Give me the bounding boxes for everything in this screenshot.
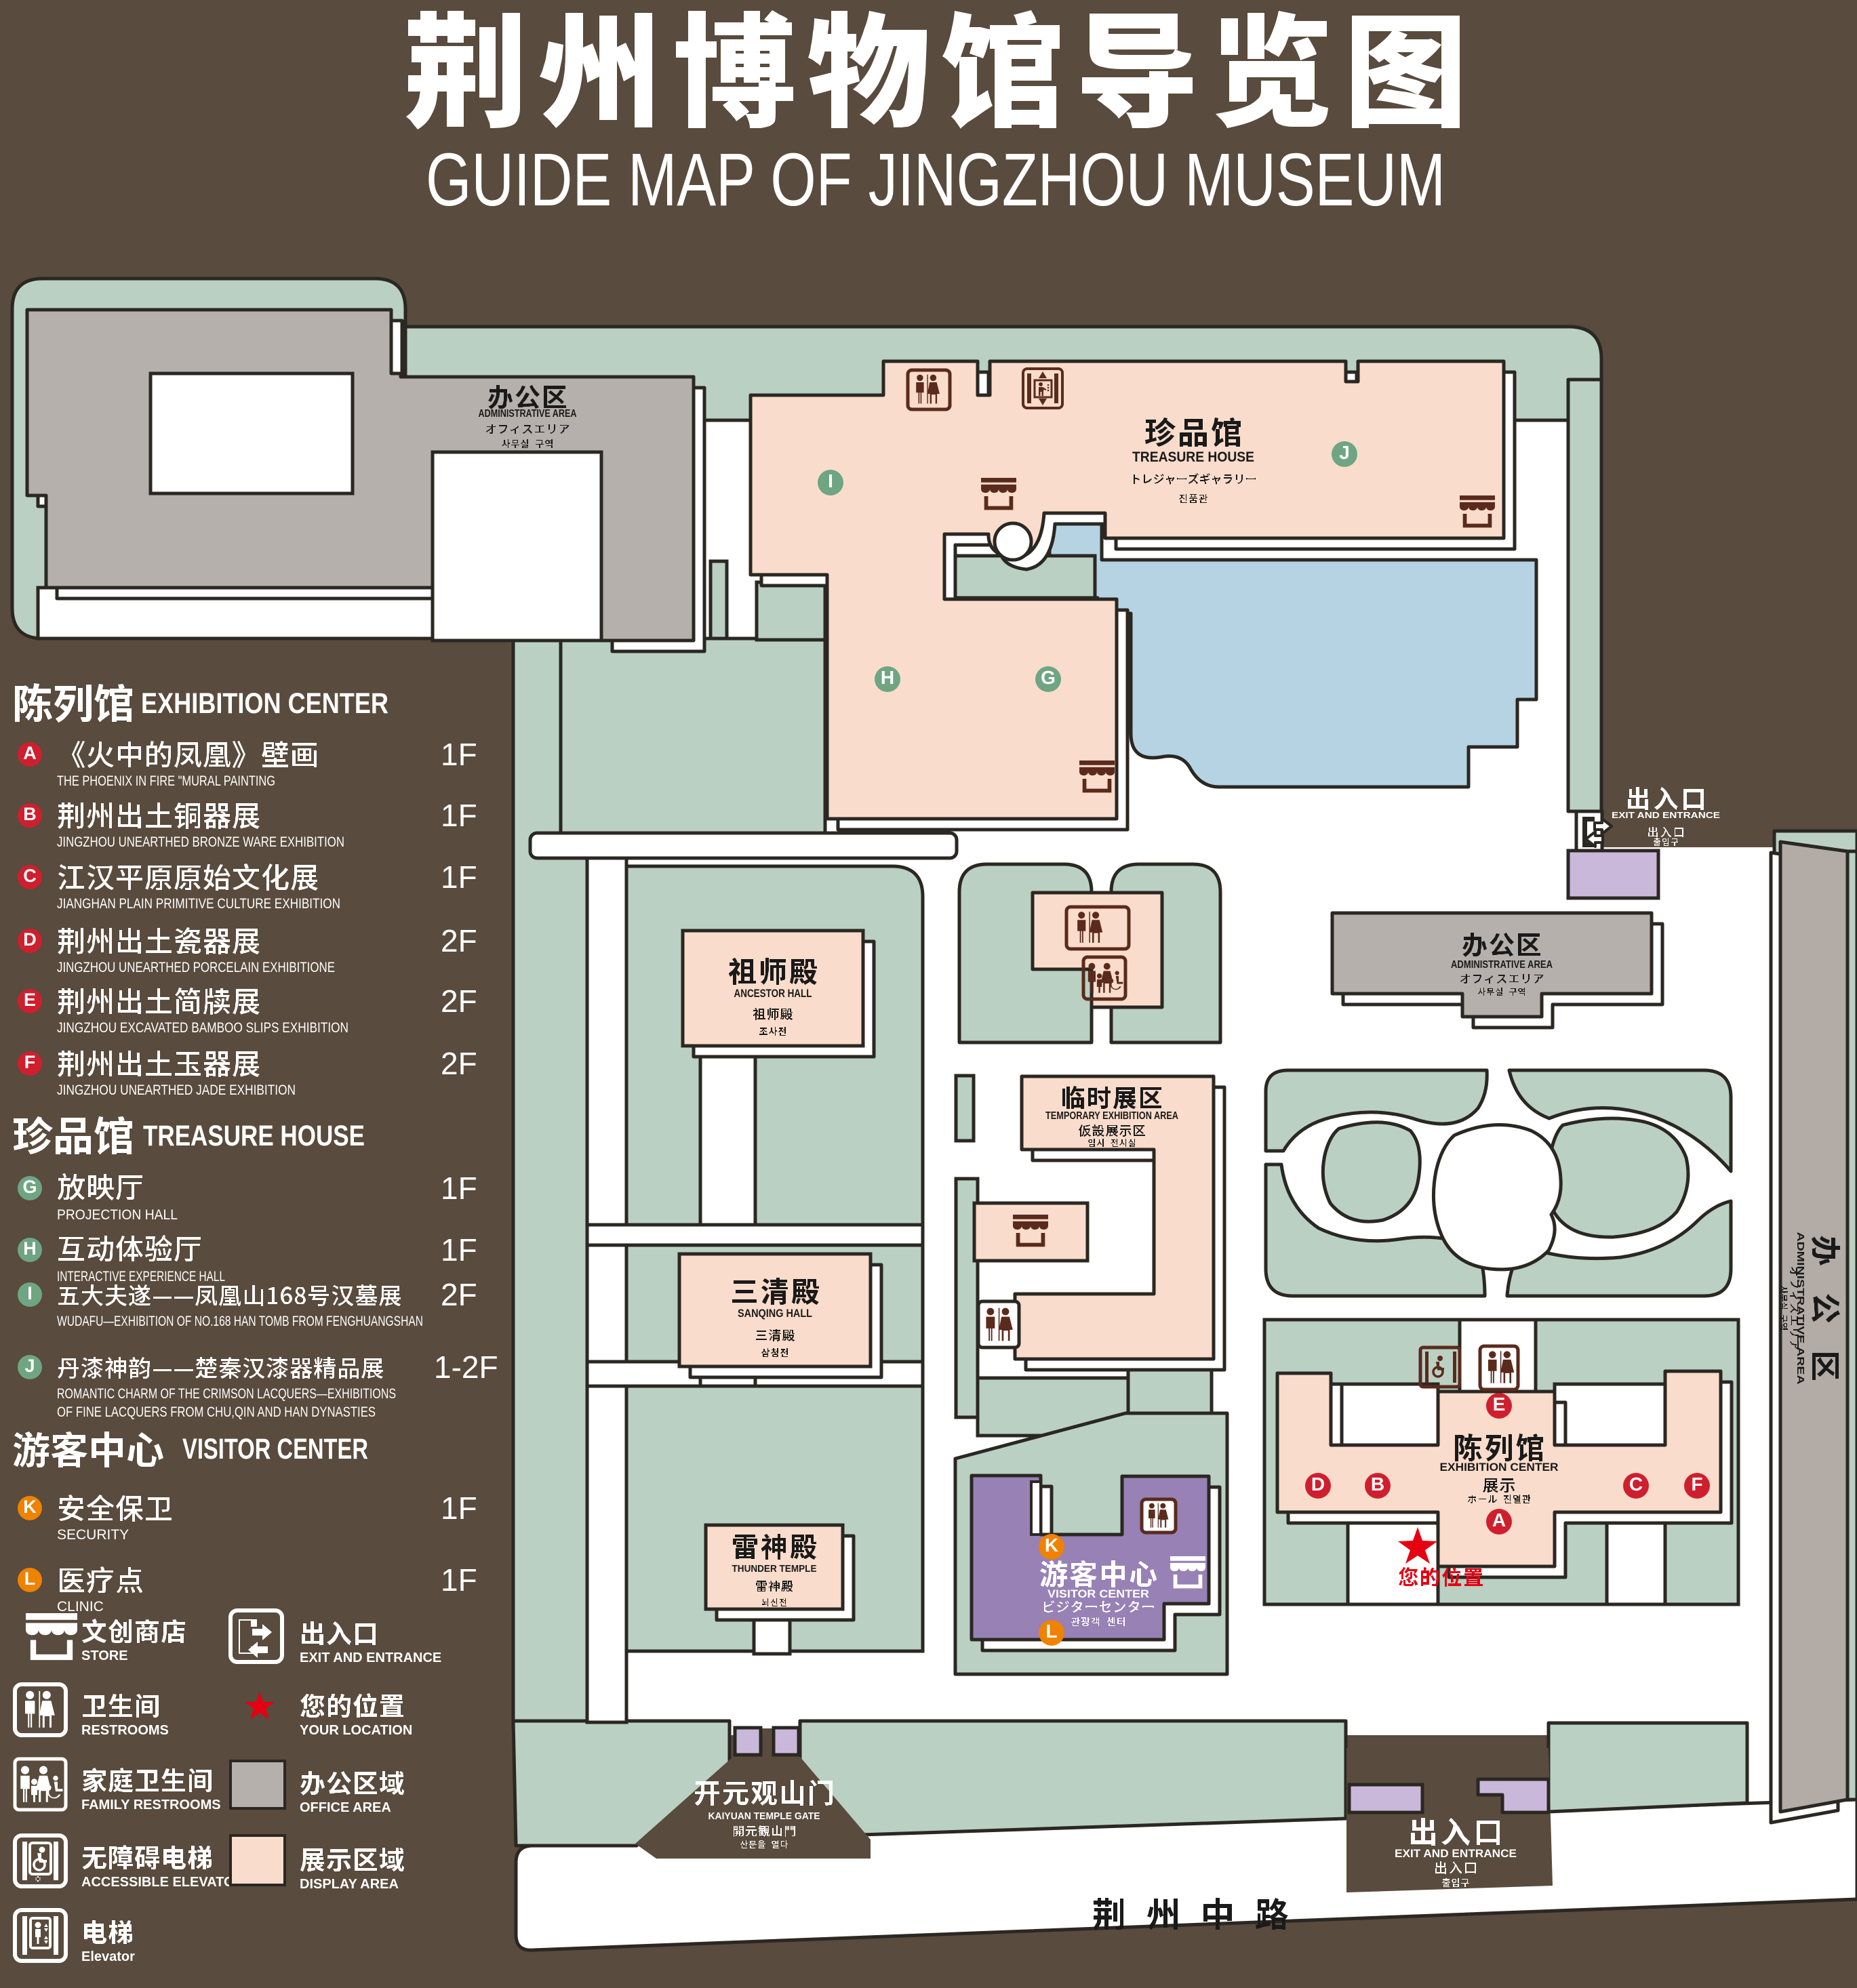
svg-text:EXIT AND ENTRANCE: EXIT AND ENTRANCE <box>1612 810 1720 820</box>
svg-text:TEMPORARY EXHIBITION AREA: TEMPORARY EXHIBITION AREA <box>1045 1110 1178 1122</box>
svg-text:I: I <box>828 470 833 491</box>
svg-text:WUDAFU—EXHIBITION OF NO.168 HA: WUDAFU—EXHIBITION OF NO.168 HAN TOMB FRO… <box>57 1314 423 1329</box>
svg-text:SECURITY: SECURITY <box>57 1527 129 1543</box>
svg-text:KAIYUAN TEMPLE GATE: KAIYUAN TEMPLE GATE <box>708 1810 820 1822</box>
svg-text:ADMINISTRATIVE AREA: ADMINISTRATIVE AREA <box>1451 959 1553 971</box>
svg-text:C: C <box>1629 1474 1643 1495</box>
svg-text:2F: 2F <box>441 1277 477 1312</box>
svg-text:2F: 2F <box>441 1046 477 1081</box>
svg-text:TREASURE HOUSE: TREASURE HOUSE <box>143 1120 365 1152</box>
svg-text:F: F <box>1691 1474 1702 1495</box>
svg-text:B: B <box>1371 1474 1384 1495</box>
svg-text:1F: 1F <box>441 859 477 895</box>
svg-text:H: H <box>881 667 894 688</box>
svg-text:1F: 1F <box>441 737 477 772</box>
svg-text:D: D <box>1311 1474 1325 1495</box>
svg-text:YOUR LOCATION: YOUR LOCATION <box>300 1723 412 1738</box>
svg-text:1F: 1F <box>441 1232 477 1267</box>
svg-text:JINGZHOU UNEARTHED JADE EXHIBI: JINGZHOU UNEARTHED JADE EXHIBITION <box>57 1082 296 1098</box>
svg-text:G: G <box>1041 667 1056 688</box>
svg-text:E: E <box>1493 1394 1506 1415</box>
svg-text:1-2F: 1-2F <box>434 1350 498 1385</box>
svg-text:B: B <box>23 804 37 824</box>
svg-text:1F: 1F <box>441 798 477 833</box>
svg-text:OF FINE LACQUERS FROM CHU,QIN: OF FINE LACQUERS FROM CHU,QIN AND HAN DY… <box>57 1404 376 1420</box>
svg-text:ROMANTIC CHARM OF THE CRIMSON: ROMANTIC CHARM OF THE CRIMSON LACQUERS—E… <box>57 1386 396 1402</box>
svg-text:FAMILY RESTROOMS: FAMILY RESTROOMS <box>81 1798 221 1812</box>
svg-text:STORE: STORE <box>81 1648 128 1663</box>
svg-text:I: I <box>27 1283 33 1303</box>
svg-text:GUIDE MAP OF JINGZHOU MUSEUM: GUIDE MAP OF JINGZHOU MUSEUM <box>426 138 1445 222</box>
svg-text:K: K <box>23 1497 37 1517</box>
svg-text:G: G <box>22 1177 37 1197</box>
svg-text:THUNDER TEMPLE: THUNDER TEMPLE <box>732 1563 817 1575</box>
svg-text:JINGZHOU UNEARTHED BRONZE WARE: JINGZHOU UNEARTHED BRONZE WARE EXHIBITIO… <box>57 834 344 850</box>
svg-text:JINGZHOU EXCAVATED BAMBOO SLIP: JINGZHOU EXCAVATED BAMBOO SLIPS EXHIBITI… <box>57 1020 348 1036</box>
svg-text:D: D <box>23 929 37 950</box>
svg-text:CLINIC: CLINIC <box>57 1599 104 1615</box>
svg-text:2F: 2F <box>441 983 477 1019</box>
svg-text:VISITOR CENTER: VISITOR CENTER <box>1047 1587 1149 1600</box>
svg-text:ADMINISTRATIVE AREA: ADMINISTRATIVE AREA <box>1795 1232 1806 1385</box>
svg-text:1F: 1F <box>441 1490 477 1526</box>
svg-text:ANCESTOR HALL: ANCESTOR HALL <box>734 987 812 1000</box>
svg-text:K: K <box>1045 1535 1058 1556</box>
svg-text:A: A <box>23 743 37 763</box>
svg-text:1F: 1F <box>441 1562 477 1598</box>
svg-text:SANQING HALL: SANQING HALL <box>738 1307 812 1320</box>
svg-text:2F: 2F <box>441 923 477 958</box>
svg-text:INTERACTIVE EXPERIENCE HALL: INTERACTIVE EXPERIENCE HALL <box>57 1269 225 1284</box>
svg-text:EXIT AND ENTRANCE: EXIT AND ENTRANCE <box>300 1650 441 1665</box>
svg-text:H: H <box>23 1238 37 1259</box>
svg-text:F: F <box>24 1052 36 1072</box>
svg-text:J: J <box>24 1356 35 1376</box>
svg-text:VISITOR CENTER: VISITOR CENTER <box>182 1433 368 1465</box>
svg-text:DISPLAY AREA: DISPLAY AREA <box>300 1877 399 1892</box>
svg-text:PROJECTION HALL: PROJECTION HALL <box>57 1207 178 1223</box>
svg-text:TREASURE HOUSE: TREASURE HOUSE <box>1132 449 1254 465</box>
svg-text:ACCESSIBLE ELEVATOR: ACCESSIBLE ELEVATOR <box>81 1875 245 1890</box>
svg-text:EXHIBITION CENTER: EXHIBITION CENTER <box>141 687 388 720</box>
svg-text:EXHIBITION CENTER: EXHIBITION CENTER <box>1440 1461 1559 1474</box>
svg-text:JINGZHOU UNEARTHED PORCELAIN E: JINGZHOU UNEARTHED PORCELAIN EXHIBITIONE <box>57 960 335 975</box>
svg-text:RESTROOMS: RESTROOMS <box>81 1723 169 1738</box>
svg-text:1F: 1F <box>441 1171 477 1206</box>
svg-text:E: E <box>24 990 36 1010</box>
svg-text:C: C <box>23 866 37 886</box>
svg-text:OFFICE AREA: OFFICE AREA <box>300 1800 391 1815</box>
svg-text:A: A <box>1492 1509 1506 1530</box>
svg-text:Elevator: Elevator <box>81 1949 135 1964</box>
svg-text:L: L <box>24 1568 36 1589</box>
svg-text:THE PHOENIX IN FIRE "MURAL PAI: THE PHOENIX IN FIRE "MURAL PAINTING <box>57 773 275 789</box>
svg-text:ADMINISTRATIVE AREA: ADMINISTRATIVE AREA <box>479 408 577 420</box>
svg-text:L: L <box>1045 1621 1057 1642</box>
svg-text:J: J <box>1339 442 1350 463</box>
svg-text:EXIT AND ENTRANCE: EXIT AND ENTRANCE <box>1395 1847 1517 1860</box>
svg-text:JIANGHAN PLAIN PRIMITIVE CULTU: JIANGHAN PLAIN PRIMITIVE CULTURE EXHIBIT… <box>57 896 340 912</box>
